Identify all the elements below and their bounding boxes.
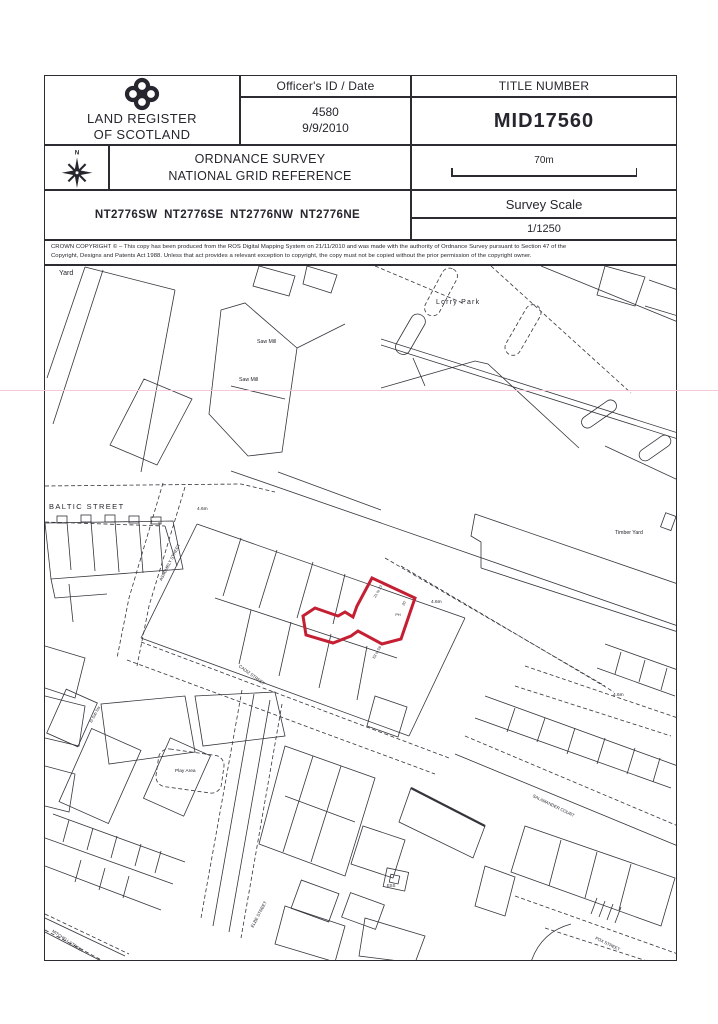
survey-scale-value: 1/1250 (527, 223, 561, 235)
map-label-elbe-street: ELBE STREET (250, 900, 268, 928)
grid-references-cell: NT2776SW NT2776SE NT2776NW NT2776NE (44, 190, 411, 240)
survey-scale-value-cell: 1/1250 (411, 218, 677, 240)
ordnance-survey-map: Yard Lorry Park Saw Mill Saw Mill BALTIC… (44, 265, 677, 961)
copyright-line1: CROWN COPYRIGHT © – This copy has been p… (51, 243, 670, 252)
scale-bar-cell: 70m (411, 145, 677, 190)
os-grid-reference-cell: ORDNANCE SURVEY NATIONAL GRID REFERENCE (109, 145, 411, 190)
map-label-salamander-court: SALAMANDER COURT (532, 793, 576, 818)
title-number-label-cell: TITLE NUMBER (411, 75, 677, 97)
title-number: MID17560 (494, 110, 594, 133)
map-label-saw-mill-1: Saw Mill (257, 339, 276, 345)
officer-id-date-value-cell: 4580 9/9/2010 (240, 97, 411, 145)
map-parcel-lines (45, 266, 677, 961)
os-grid-line1: ORDNANCE SURVEY (195, 151, 326, 167)
os-grid-line2: NATIONAL GRID REFERENCE (168, 168, 351, 184)
map-label-20: 20 (401, 601, 407, 607)
title-number-value-cell: MID17560 (411, 97, 677, 145)
scale-bar-label: 70m (451, 155, 637, 166)
compass-north-label: N (74, 150, 79, 157)
map-label-yard: Yard (59, 270, 73, 277)
map-label-height-1: 4.6m (197, 506, 208, 512)
grid-references: NT2776SW NT2776SE NT2776NW NT2776NE (95, 209, 360, 221)
title-number-label: TITLE NUMBER (499, 79, 589, 93)
map-label-timber-yard: Timber Yard (615, 530, 643, 536)
title-boundary-red-outline (303, 578, 415, 644)
map-label-saw-mill-2: Saw Mill (239, 377, 258, 383)
org-name-line2: OF SCOTLAND (94, 127, 191, 143)
map-label-lorry-park: Lorry Park (436, 299, 480, 306)
copyright-notice: CROWN COPYRIGHT © – This copy has been p… (44, 240, 677, 265)
map-label-baltic-street: BALTIC STREET (49, 502, 125, 511)
compass-cell: N (44, 145, 109, 190)
copyright-line2: Copyright, Designs and Patents Act 1988.… (51, 252, 670, 261)
map-label-ess: ESS (387, 883, 396, 888)
map-label-play-area: Play Area (175, 768, 196, 774)
land-register-logo-cell: LAND REGISTER OF SCOTLAND (44, 75, 240, 145)
officer-id-date-label: Officer's ID / Date (277, 79, 375, 93)
map-label-height-2: 4.6m (431, 599, 442, 605)
compass-rose-icon: N (46, 146, 108, 189)
officer-id-date-label-cell: Officer's ID / Date (240, 75, 411, 97)
map-boundary-dashed-lines (45, 266, 677, 961)
map-canvas: Yard Lorry Park Saw Mill Saw Mill BALTIC… (45, 266, 677, 961)
survey-scale-label: Survey Scale (506, 197, 583, 212)
title-plan-page: LAND REGISTER OF SCOTLAND Officer's ID /… (0, 0, 718, 1024)
map-label-height-3: 4.6m (613, 692, 624, 698)
scale-bar-line (451, 175, 637, 177)
org-name-line1: LAND REGISTER (87, 111, 197, 127)
scale-bar-tick-right (636, 168, 638, 177)
survey-scale-label-cell: Survey Scale (411, 190, 677, 218)
officer-id: 4580 (312, 105, 339, 121)
ros-quatrefoil-logo-icon (124, 77, 160, 111)
scale-bar-tick-left (451, 168, 453, 177)
map-label-mitchell-street: MITCHELL STREET (51, 928, 85, 953)
map-label-fox-street: FOX STREET (594, 935, 621, 951)
map-label-ph: PH (395, 613, 401, 617)
scan-fold-line (0, 390, 718, 391)
officer-date: 9/9/2010 (302, 121, 349, 137)
